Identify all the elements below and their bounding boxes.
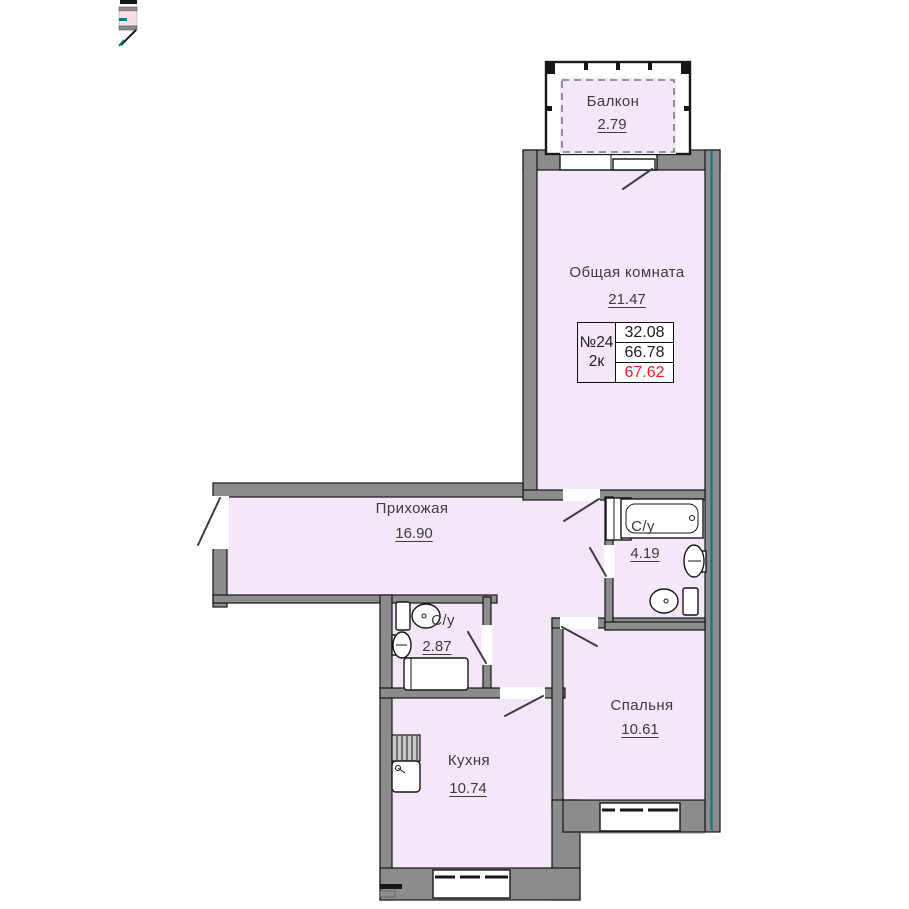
wall-bathroom-bottom [605, 622, 705, 630]
hallway-label: Прихожая [376, 500, 449, 517]
kitchen-label: Кухня [448, 752, 490, 769]
kitchen-door-opening [500, 687, 545, 699]
kitchen-area: 10.74 [449, 780, 487, 797]
unit-number: №24 [580, 334, 614, 353]
wall-hall-bottom [213, 595, 497, 603]
kitchen-window [433, 870, 510, 898]
bedroom-window-tick [643, 808, 648, 813]
wc-area: 2.87 [422, 638, 451, 655]
balcony-frame-tick [648, 62, 652, 70]
balcony-label: Балкон [587, 93, 640, 110]
living-door-opening [563, 489, 600, 501]
washing-machine-icon [404, 658, 468, 690]
balcony-frame-tick [684, 106, 690, 111]
unit-info-card: №24 2к 32.08 66.78 67.62 [577, 322, 674, 383]
wall-hall-top [213, 483, 523, 497]
unit-area-value-total: 67.62 [616, 363, 673, 382]
balcony-frame-tick [546, 106, 552, 111]
room-floor-corridor [491, 618, 552, 688]
balcony-frame-tick [616, 62, 620, 70]
unit-areas-cell: 32.08 66.78 67.62 [616, 323, 673, 382]
fragment-bar [119, 7, 137, 11]
fragment-bar [380, 884, 402, 889]
kitchen-window-tick [480, 875, 485, 880]
bedroom-window [600, 803, 680, 831]
hallway-area: 16.90 [395, 525, 433, 542]
unit-type: 2к [589, 353, 604, 372]
fragment-bar [120, 0, 137, 4]
balcony-frame-corner [681, 62, 690, 74]
bathroom-area: 4.19 [630, 545, 659, 562]
toilet-tank [683, 588, 698, 615]
balcony-door-leaf [613, 159, 655, 170]
floor-plan-drawing [0, 0, 909, 909]
room-floor-hallway-2 [491, 595, 605, 618]
kitchen-window-tick [455, 875, 460, 880]
plan-fragment-top-left [119, 0, 137, 46]
unit-number-cell: №24 2к [578, 323, 616, 382]
balcony-frame-tick [584, 62, 588, 70]
room-floors [227, 78, 705, 868]
floor-plan: Балкон 2.79 Общая комната 21.47 Прихожая… [0, 0, 909, 909]
unit-area-value-2: 66.78 [616, 343, 673, 363]
wall-bedroom-left [552, 618, 563, 808]
living-area: 21.47 [608, 291, 646, 308]
fragment-arrow [121, 30, 136, 45]
drainboard [392, 735, 420, 761]
kitchen-sink-icon [392, 735, 420, 792]
room-floor-bedroom [563, 628, 705, 800]
wc-sink-icon [392, 632, 411, 658]
bedroom-area: 10.61 [621, 721, 659, 738]
fragment-teal-tick [119, 18, 127, 21]
toilet-tank [396, 602, 410, 630]
bathroom-door-opening [604, 545, 614, 578]
bedroom-door-opening [560, 617, 598, 629]
unit-area-value-1: 32.08 [616, 323, 673, 343]
bathroom-label: С/у [631, 518, 655, 535]
living-label: Общая комната [569, 264, 684, 281]
fragment-bar [380, 891, 395, 897]
bedroom-window-tick [615, 808, 620, 813]
wall-kitchen-left [380, 595, 392, 900]
entrance-door-opening [211, 496, 229, 549]
balcony-frame-corner [546, 62, 555, 74]
fragment-bar [119, 26, 137, 30]
balcony-area: 2.79 [597, 116, 626, 133]
bedroom-label: Спальня [610, 697, 673, 714]
wall-living-left [523, 150, 537, 497]
wc-label: С/у [431, 612, 455, 629]
